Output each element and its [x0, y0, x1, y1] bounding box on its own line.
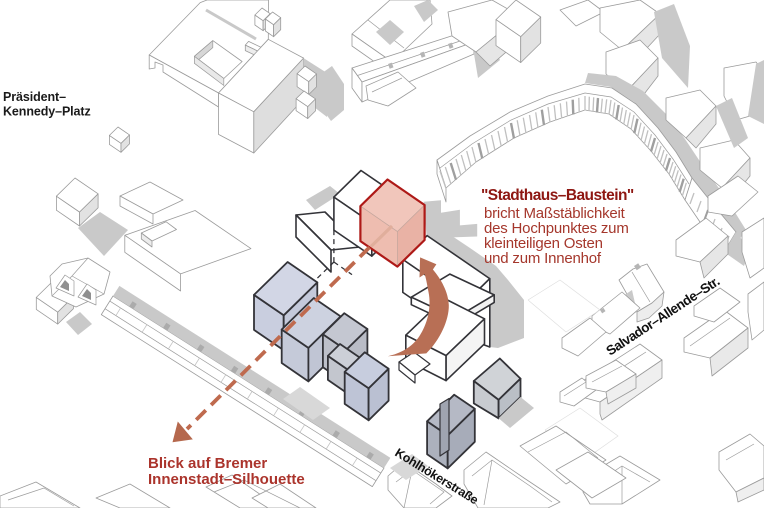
svg-text:und zum Innenhof: und zum Innenhof [484, 250, 602, 267]
svg-text:Innenstadt–Silhouette: Innenstadt–Silhouette [148, 471, 305, 488]
svg-text:Blick auf Bremer: Blick auf Bremer [148, 455, 267, 472]
svg-text:Kennedy–Platz: Kennedy–Platz [3, 105, 91, 119]
svg-text:Präsident–: Präsident– [3, 90, 66, 104]
svg-text:"Stadthaus–Baustein": "Stadthaus–Baustein" [481, 187, 634, 204]
